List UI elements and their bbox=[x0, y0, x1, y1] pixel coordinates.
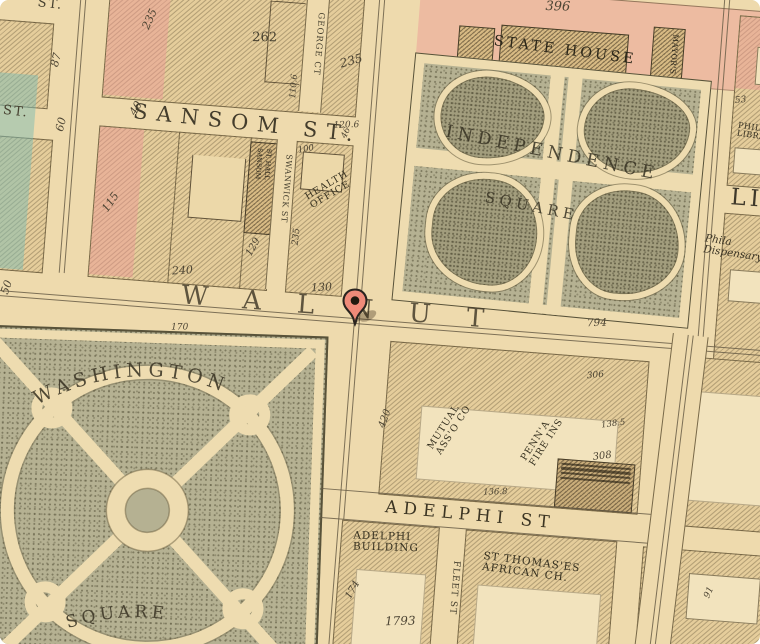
building-footprint bbox=[728, 269, 760, 306]
building-label-sansom-hall-2: ST. HALL bbox=[263, 148, 272, 179]
building-footprint bbox=[685, 573, 760, 625]
lot-number: 240 bbox=[172, 264, 194, 276]
street-centerline bbox=[59, 0, 94, 273]
street-label-fleet: FLEET ST bbox=[447, 560, 461, 615]
building-footprint bbox=[472, 584, 601, 644]
lot-number: 53 bbox=[735, 96, 747, 106]
lot-number: 235 bbox=[292, 228, 303, 246]
lot-number: 60 bbox=[54, 116, 68, 132]
small-building-tiny-text bbox=[554, 458, 636, 513]
lot-number: 136.8 bbox=[483, 488, 508, 497]
building-footprint bbox=[349, 569, 426, 644]
lot-number: 794 bbox=[587, 318, 607, 329]
lot-number: 262 bbox=[252, 31, 277, 45]
building-label-sansom-hall-1: SANSOM bbox=[254, 148, 263, 180]
lot-number: 110.6 bbox=[289, 74, 299, 99]
lot-number: 1793 bbox=[385, 614, 416, 627]
building-label-adelphi-building: ADELPHI BUILDING bbox=[353, 531, 419, 555]
street-label-st-lower: ST. bbox=[2, 104, 29, 120]
lot-number: 50 bbox=[0, 279, 14, 296]
building-footprint bbox=[733, 147, 760, 177]
lot-number: 396 bbox=[545, 0, 570, 14]
city-block bbox=[0, 127, 53, 273]
street-label-st-upper: ST. bbox=[37, 0, 64, 13]
lot-number: 130 bbox=[311, 281, 333, 293]
pin-dot bbox=[351, 296, 360, 305]
lot-number: 306 bbox=[587, 371, 605, 382]
street-label-library-fragment: LI bbox=[730, 185, 760, 212]
map-viewport[interactable]: ST. ST. 87 60 GEORGE CT 505 407 262 235 … bbox=[0, 0, 760, 644]
lot-number: 87 bbox=[49, 52, 63, 68]
map-pin[interactable] bbox=[334, 287, 384, 337]
lot-outline bbox=[187, 155, 246, 222]
washington-square-paths: WASHINGTON SQUARE bbox=[0, 324, 329, 644]
independence-square bbox=[391, 52, 711, 328]
city-block bbox=[0, 12, 54, 110]
adelphi-building-line2: BUILDING bbox=[353, 542, 419, 555]
washington-square: WASHINGTON SQUARE bbox=[0, 324, 329, 644]
